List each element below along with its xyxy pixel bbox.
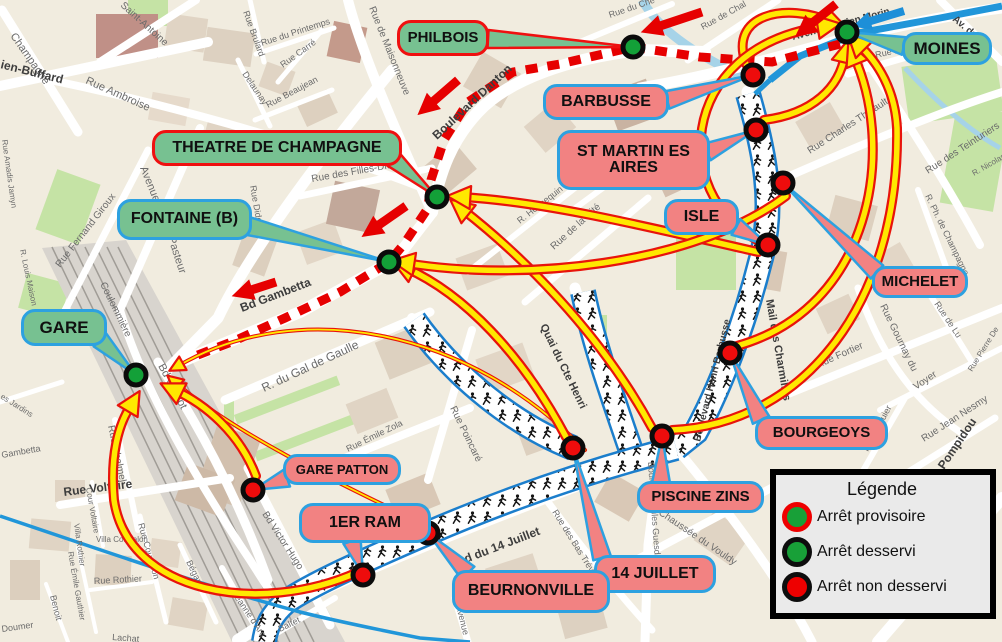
street-label: Doumer [1, 620, 34, 634]
callout-barbusse: BARBUSSE [543, 84, 669, 120]
street-label: Rue Gournay du [877, 302, 919, 373]
premier-ram-stop [353, 565, 373, 585]
gare-stop [126, 365, 146, 385]
street-label: Rue Amadis Jamyn [0, 139, 19, 209]
fontaine-stop [379, 252, 399, 272]
legend-item: Arrêt non desservi [782, 572, 982, 602]
theatre-stop [427, 187, 447, 207]
moines-stop [837, 22, 857, 42]
callout-gare-patton: GARE PATTON [283, 454, 401, 485]
stop-marker-icon [782, 537, 812, 567]
callout-gare: GARE [21, 309, 107, 346]
stop-marker-icon [782, 502, 812, 532]
callout-michelet: MICHELET [872, 266, 968, 298]
barbusse-stop [743, 65, 763, 85]
callout-fontaine-b: FONTAINE (B) [117, 199, 252, 240]
street-label: Pasteur [165, 235, 188, 275]
stop-marker-icon [782, 572, 812, 602]
street-label: Gambetta [1, 443, 42, 460]
callout-premier-ram: 1ER RAM [299, 503, 431, 543]
quatorze-juillet-stop [563, 438, 583, 458]
street-label: Avenue [137, 165, 162, 204]
callout-bourgeoys: BOURGEOYS [755, 416, 888, 450]
callout-isle: ISLE [664, 199, 739, 235]
callout-quatorze-juillet: 14 JUILLET [594, 555, 716, 593]
philbois-stop [623, 37, 643, 57]
callout-piscine-zins: PISCINE ZINS [637, 481, 764, 513]
callout-beurnonville: BEURNONVILLE [452, 570, 610, 613]
legend-item-label: Arrêt provisoire [817, 508, 925, 526]
street-label: Rue Ambroise [84, 75, 152, 114]
legend-item: Arrêt provisoire [782, 502, 982, 532]
bourgeoys-stop [720, 343, 740, 363]
callout-st-martin-es-aires: ST MARTIN ES AIRES [557, 130, 710, 190]
callout-philbois: PHILBOIS [397, 20, 489, 56]
bus-deviation-map: Champagneien-BuffardRue AmbroiseSaint-An… [0, 0, 1002, 642]
legend-title: Légende [782, 479, 982, 500]
callout-moines: MOINES [902, 32, 992, 65]
legend-item: Arrêt desservi [782, 537, 982, 567]
callout-theatre-de-champagne: THEATRE DE CHAMPAGNE [152, 130, 402, 166]
michelet-stop [773, 173, 793, 193]
legend: Légende Arrêt provisoireArrêt desserviAr… [770, 469, 996, 619]
street-label: Lachat [112, 632, 140, 642]
legend-item-label: Arrêt non desservi [817, 578, 947, 596]
piscine-zins-stop [652, 426, 672, 446]
legend-item-label: Arrêt desservi [817, 543, 916, 561]
st-martin-stop [746, 120, 766, 140]
street-label: Benoit [48, 594, 64, 622]
isle-stop [758, 235, 778, 255]
gare-patton-stop [243, 480, 263, 500]
callout-tail-philbois [488, 30, 633, 48]
legend-items: Arrêt provisoireArrêt desserviArrêt non … [782, 502, 982, 602]
